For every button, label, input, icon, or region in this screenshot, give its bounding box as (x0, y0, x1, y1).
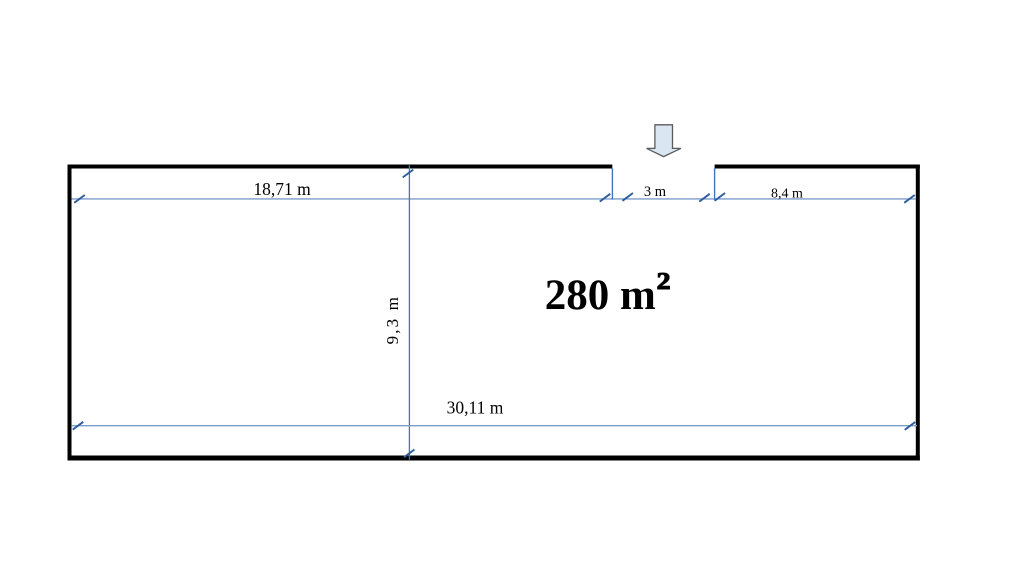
svg-text:18,71 m: 18,71 m (253, 179, 311, 199)
svg-text:9,3 m: 9,3 m (383, 295, 402, 344)
svg-text:280 m: 280 m (545, 272, 656, 319)
svg-text:8,4 m: 8,4 m (771, 187, 803, 202)
svg-text:2: 2 (657, 268, 671, 295)
svg-text:30,11 m: 30,11 m (447, 398, 504, 418)
svg-text:3 m: 3 m (644, 184, 667, 200)
